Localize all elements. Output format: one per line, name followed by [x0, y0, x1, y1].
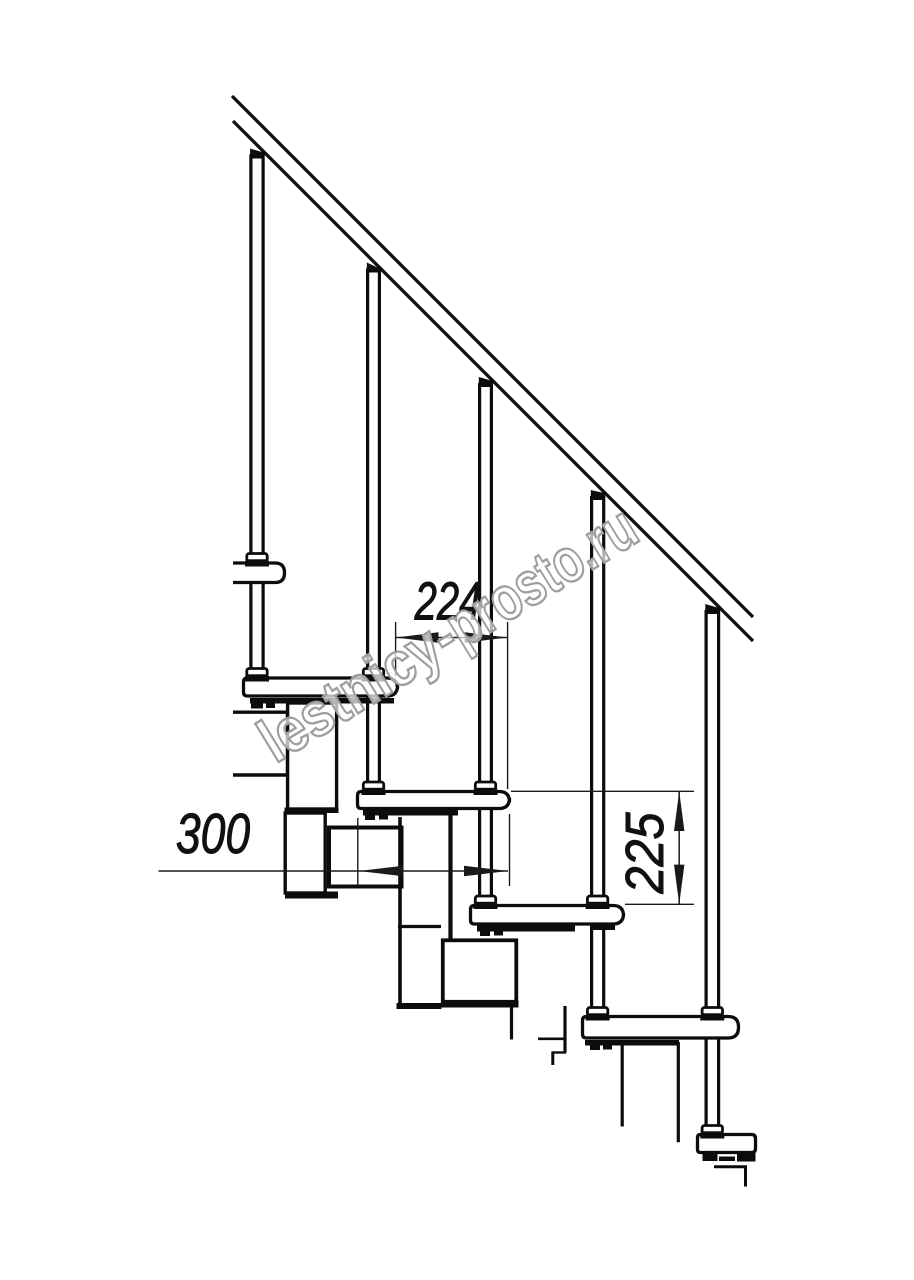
svg-text:300: 300	[176, 802, 250, 866]
svg-text:225: 225	[614, 812, 675, 894]
